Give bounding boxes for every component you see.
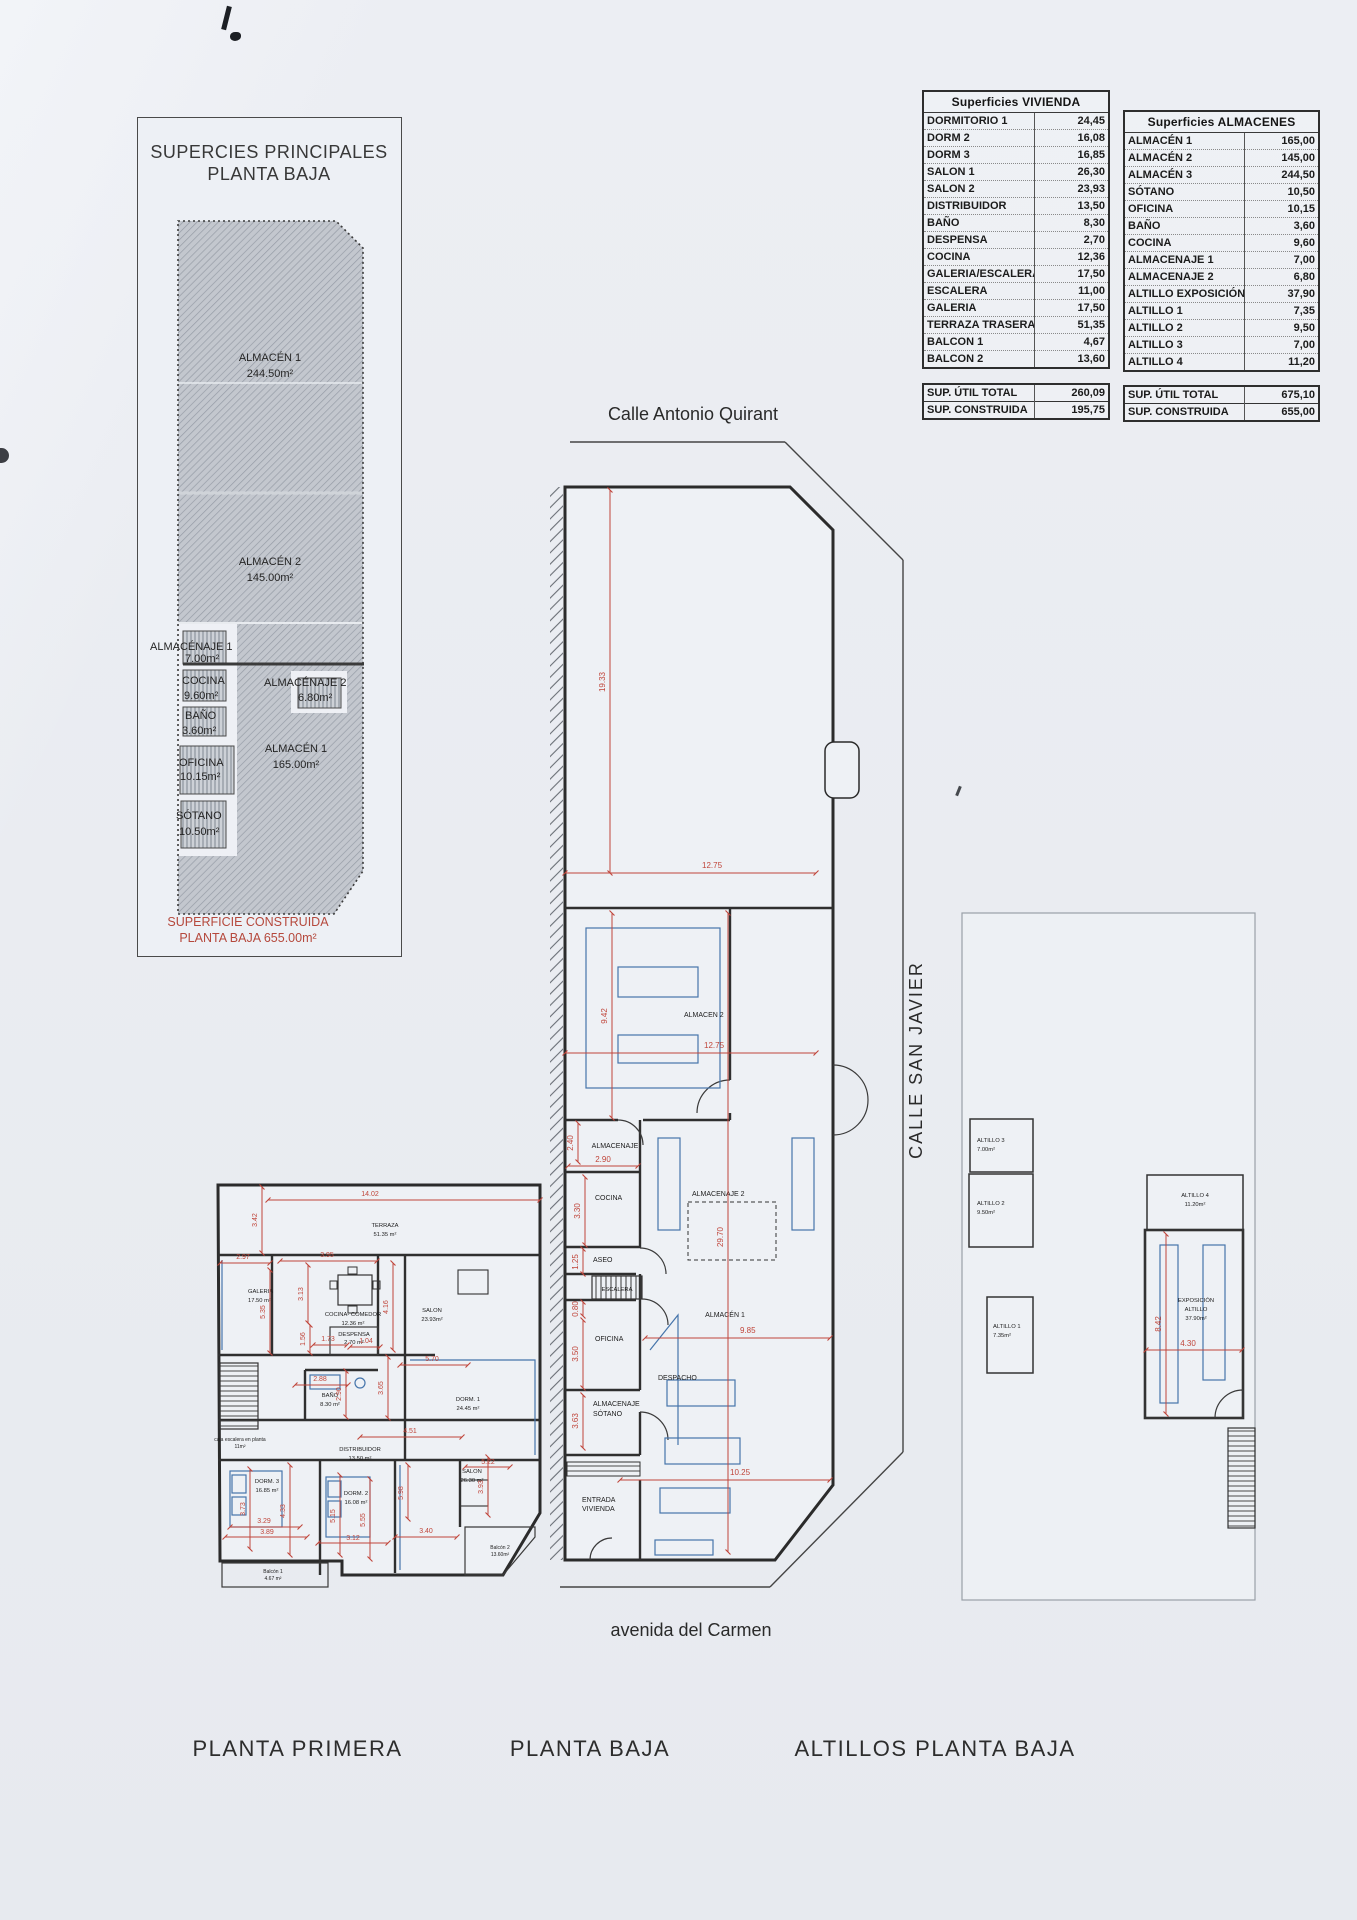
dimension-label: 3.65 — [378, 1381, 385, 1395]
table-row: DORMITORIO 124,45 — [923, 113, 1109, 130]
constructed-area-note-line1: SUPERFICIE CONSTRUIDA — [167, 915, 329, 929]
cell-value: 7,35 — [1244, 303, 1319, 320]
room-label: EXPOSICIÓN — [1178, 1297, 1214, 1304]
room-label: Balcón 1 — [263, 1569, 283, 1575]
room-label: COCINA- COMEDOR — [325, 1312, 381, 1318]
cell-label: COCINA — [1124, 235, 1244, 252]
dimension-label: 2.88 — [313, 1376, 327, 1383]
table-row: COCINA12,36 — [923, 249, 1109, 266]
street-label-north: Calle Antonio Quirant — [608, 404, 778, 424]
room-label: ALMACENAJE — [593, 1401, 640, 1408]
table-row: SALON 223,93 — [923, 181, 1109, 198]
room-area: 13.50 m² — [349, 1456, 372, 1462]
room-label: ALMACENAJE 2 — [692, 1191, 745, 1198]
room-area: 9.50m² — [977, 1210, 995, 1216]
dimension-label: 2.90 — [595, 1155, 611, 1164]
room-area: 145.00m² — [247, 572, 294, 584]
cell-value: 195,75 — [1034, 402, 1109, 420]
cell-label: SUP. CONSTRUIDA — [1124, 404, 1244, 422]
room-area: 9.60m² — [184, 690, 219, 702]
table-row: ALMACÉN 2145,00 — [1124, 150, 1319, 167]
room-label: ALTILLO 4 — [1181, 1193, 1209, 1199]
room-label: VIVIENDA — [582, 1506, 615, 1513]
stairs — [1228, 1428, 1255, 1528]
room-area: 4.67 m² — [265, 1576, 282, 1582]
table-row: DORM 316,85 — [923, 147, 1109, 164]
room-area: 11.20m² — [1185, 1202, 1206, 1208]
table-row: SUP. ÚTIL TOTAL675,10 — [1124, 386, 1319, 404]
cell-value: 9,50 — [1244, 320, 1319, 337]
room-label: DESPACHO — [658, 1375, 697, 1382]
table-title: Superficies ALMACENES — [1124, 111, 1319, 133]
room-area: 51.35 m² — [374, 1232, 397, 1238]
cell-value: 51,35 — [1034, 317, 1109, 334]
room-label: ALMACENAJE — [592, 1143, 639, 1150]
table-superficies-vivienda: Superficies VIVIENDA DORMITORIO 124,45DO… — [922, 90, 1110, 369]
scanned-plan-sheet: SUPERCIES PRINCIPALES PLANTA BAJA — [0, 0, 1357, 1920]
cell-label: ALTILLO 1 — [1124, 303, 1244, 320]
cell-label: ALTILLO 2 — [1124, 320, 1244, 337]
room-label: SALON — [462, 1469, 482, 1475]
room-area: 8.30 m² — [320, 1402, 340, 1408]
cell-value: 17,50 — [1034, 300, 1109, 317]
scan-artifact — [230, 32, 241, 41]
room-label: SÓTANO — [593, 1409, 623, 1418]
cell-value: 6,80 — [1244, 269, 1319, 286]
dimension-label: 9.42 — [600, 1008, 609, 1024]
cell-label: SÓTANO — [1124, 184, 1244, 201]
site-diagram-box: SUPERCIES PRINCIPALES PLANTA BAJA — [137, 117, 402, 957]
cell-value: 9,60 — [1244, 235, 1319, 252]
room-area: 37.90m² — [1185, 1316, 1206, 1322]
dimension-label: 5.15 — [330, 1509, 337, 1523]
room-label: ALMACEN 2 — [684, 1012, 724, 1019]
room-label: Balcón 2 — [490, 1545, 510, 1551]
room-label: GALERIA — [248, 1289, 273, 1295]
cell-label: ALMACÉN 3 — [1124, 167, 1244, 184]
cell-value: 165,00 — [1244, 133, 1319, 150]
room-label: DORM. 1 — [456, 1397, 480, 1403]
street-label-east: CALLE SAN JAVIER — [906, 961, 926, 1159]
table-row: DESPENSA2,70 — [923, 232, 1109, 249]
room-label: ALMACÉNAJE 2 — [264, 676, 347, 689]
room-area: 16.85 m² — [256, 1488, 279, 1494]
site-diagram: SUPERCIES PRINCIPALES PLANTA BAJA — [138, 118, 401, 956]
dimension-label: 1.04 — [359, 1338, 373, 1345]
dimension-label: 0.80 — [571, 1301, 580, 1317]
street-label-south: avenida del Carmen — [610, 1620, 771, 1640]
plan-title-planta-primera: PLANTA PRIMERA — [175, 1736, 420, 1762]
cell-value: 655,00 — [1244, 404, 1319, 422]
table-row: ESCALERA11,00 — [923, 283, 1109, 300]
room-label: SALON — [422, 1308, 442, 1314]
room-label: SÓTANO — [176, 809, 222, 822]
table-row: BALCON 14,67 — [923, 334, 1109, 351]
cell-value: 3,60 — [1244, 218, 1319, 235]
cell-label: SALON 2 — [923, 181, 1034, 198]
room-area: 165.00m² — [273, 759, 320, 771]
cell-label: ALMACÉN 1 — [1124, 133, 1244, 150]
room-label: DISTRIBUIDOR — [339, 1447, 381, 1453]
room-label: DORM. 3 — [255, 1479, 279, 1485]
room-area: 16.08 m² — [345, 1500, 368, 1506]
dimension-label: 2.90 — [336, 1387, 343, 1401]
room-label: ALTILLO 2 — [977, 1201, 1005, 1207]
cell-value: 145,00 — [1244, 150, 1319, 167]
dimension-label: 12.75 — [704, 1041, 725, 1050]
table-row: SUP. CONSTRUIDA655,00 — [1124, 404, 1319, 422]
cell-value: 4,67 — [1034, 334, 1109, 351]
cell-label: SUP. ÚTIL TOTAL — [1124, 386, 1244, 404]
room-label: ASEO — [593, 1257, 613, 1264]
dimension-label: 3.13 — [298, 1287, 305, 1301]
plan-title-altillos: ALTILLOS PLANTA BAJA — [785, 1736, 1085, 1762]
dimension-label: 1.73 — [321, 1336, 335, 1343]
site-title-line1: SUPERCIES PRINCIPALES — [150, 142, 387, 162]
table-row: ALTILLO 29,50 — [1124, 320, 1319, 337]
table-row: DISTRIBUIDOR13,50 — [923, 198, 1109, 215]
table-row: BAÑO3,60 — [1124, 218, 1319, 235]
table-row: BALCON 213,60 — [923, 351, 1109, 369]
room-area: 24.45 m² — [457, 1406, 480, 1412]
cell-value: 10,15 — [1244, 201, 1319, 218]
cell-value: 12,36 — [1034, 249, 1109, 266]
constructed-area-note-line2: PLANTA BAJA 655.00m² — [179, 931, 316, 945]
room-area: 6.80m² — [298, 692, 333, 704]
cell-value: 10,50 — [1244, 184, 1319, 201]
cell-value: 16,85 — [1034, 147, 1109, 164]
dimension-label: 4.16 — [383, 1300, 390, 1314]
dimension-label: 3.29 — [257, 1518, 271, 1525]
cell-value: 13,60 — [1034, 351, 1109, 369]
room-area: 7.35m² — [993, 1333, 1011, 1339]
cell-label: DESPENSA — [923, 232, 1034, 249]
dimension-label: 5.35 — [260, 1305, 267, 1319]
cell-label: DORMITORIO 1 — [923, 113, 1034, 130]
cell-value: 26,30 — [1034, 164, 1109, 181]
cell-label: BAÑO — [923, 215, 1034, 232]
dimension-label: 3.89 — [260, 1529, 274, 1536]
room-label: ALTILLO — [1185, 1307, 1208, 1313]
dimension-label: 3.63 — [571, 1413, 580, 1429]
room-area: 13.60m² — [491, 1552, 510, 1558]
room-area: 12.36 m² — [342, 1321, 365, 1327]
room-area: 23.93m² — [421, 1317, 442, 1323]
dimension-label: 4.33 — [280, 1504, 287, 1518]
room-label: COCINA — [595, 1195, 623, 1202]
dimension-label: 2.40 — [566, 1135, 575, 1151]
cell-label: BAÑO — [1124, 218, 1244, 235]
table-row: ALTILLO 411,20 — [1124, 354, 1319, 372]
dimension-label: 3.73 — [240, 1502, 247, 1516]
dimension-label: 3.95 — [320, 1252, 334, 1259]
room-label: COCINA — [182, 675, 225, 687]
dimension-label: 3.12 — [346, 1535, 360, 1542]
room-label: OFICINA — [179, 757, 224, 769]
dimension-label: 5.70 — [425, 1356, 439, 1363]
cell-label: GALERIA/ESCALERA — [923, 266, 1034, 283]
cell-value: 11,20 — [1244, 354, 1319, 372]
table-row: ALTILLO 37,00 — [1124, 337, 1319, 354]
walls — [550, 487, 868, 1560]
dimension-label: 3.42 — [252, 1213, 259, 1227]
cell-value: 8,30 — [1034, 215, 1109, 232]
table-row: ALMACENAJE 17,00 — [1124, 252, 1319, 269]
cell-label: ALMACENAJE 1 — [1124, 252, 1244, 269]
table-row: ALTILLO 17,35 — [1124, 303, 1319, 320]
dimension-label: 9.85 — [740, 1326, 756, 1335]
table-almacenes-totals: SUP. ÚTIL TOTAL675,10SUP. CONSTRUIDA655,… — [1123, 385, 1320, 422]
cell-value: 37,90 — [1244, 286, 1319, 303]
dimension-label: 5.22 — [481, 1459, 495, 1466]
cell-label: ALTILLO 4 — [1124, 354, 1244, 372]
dimension-label: 12.75 — [702, 861, 723, 870]
room-label: TERRAZA — [371, 1223, 398, 1229]
room-label: ALMACÉN 1 — [705, 1310, 745, 1319]
cell-label: SALON 1 — [923, 164, 1034, 181]
cell-value: 16,08 — [1034, 130, 1109, 147]
cell-label: ALMACENAJE 2 — [1124, 269, 1244, 286]
table-row: ALTILLO EXPOSICIÓN37,90 — [1124, 286, 1319, 303]
table-row: GALERIA/ESCALERA17,50 — [923, 266, 1109, 283]
site-title-line2: PLANTA BAJA — [207, 164, 330, 184]
room-area: 10.15m² — [180, 771, 221, 783]
table-row: TERRAZA TRASERA51,35 — [923, 317, 1109, 334]
room-label: ENTRADA — [582, 1497, 616, 1504]
dimension-label: 14.02 — [361, 1191, 379, 1198]
cell-value: 24,45 — [1034, 113, 1109, 130]
room-label: ALMACÉNAJE 1 — [150, 640, 233, 653]
room-label: ALMACÉN 1 — [265, 742, 327, 755]
plan-title-planta-baja: PLANTA BAJA — [485, 1736, 695, 1762]
table-title: Superficies VIVIENDA — [923, 91, 1109, 113]
table-row: SALON 126,30 — [923, 164, 1109, 181]
cell-label: ALTILLO 3 — [1124, 337, 1244, 354]
room-label: caja escalera en planta — [214, 1437, 266, 1443]
table-row: ALMACÉN 1165,00 — [1124, 133, 1319, 150]
cell-value: 11,00 — [1034, 283, 1109, 300]
room-label: ALMACÉN 2 — [239, 555, 301, 568]
dimension-label: 10.25 — [730, 1468, 751, 1477]
dimension-label: 19.33 — [598, 671, 607, 692]
cell-label: DISTRIBUIDOR — [923, 198, 1034, 215]
cell-label: BALCON 2 — [923, 351, 1034, 369]
dimension-label: 5.55 — [360, 1513, 367, 1527]
planta-primera-plan: TERRAZA 51.35 m² GALERIA 17.50 m² COCINA… — [210, 1175, 550, 1605]
dimension-label: 29.70 — [716, 1226, 725, 1247]
altillos-plan: ALTILLO 3 7.00m² ALTILLO 2 9.50m² ALTILL… — [950, 900, 1280, 1620]
cell-label: COCINA — [923, 249, 1034, 266]
cell-value: 7,00 — [1244, 337, 1319, 354]
dimension-label: 3.50 — [571, 1346, 580, 1362]
table-row: SÓTANO10,50 — [1124, 184, 1319, 201]
room-area: 7.00m² — [977, 1147, 995, 1153]
table-superficies-almacenes: Superficies ALMACENES ALMACÉN 1165,00ALM… — [1123, 110, 1320, 372]
cell-label: TERRAZA TRASERA — [923, 317, 1034, 334]
room-label: ALTILLO 3 — [977, 1138, 1005, 1144]
table-row: OFICINA10,15 — [1124, 201, 1319, 218]
room-area: 244.50m² — [247, 368, 294, 380]
dimension-label: 3.40 — [419, 1528, 433, 1535]
dimension-label: 5.98 — [398, 1486, 405, 1500]
cell-label: OFICINA — [1124, 201, 1244, 218]
room-label: ESCALERA — [602, 1287, 633, 1293]
cell-value: 675,10 — [1244, 386, 1319, 404]
scan-artifact — [221, 6, 232, 30]
dimension-label: 2.97 — [236, 1254, 250, 1261]
room-label: ALTILLO 1 — [993, 1324, 1021, 1330]
room-area: 3.60m² — [182, 725, 217, 737]
cell-value: 7,00 — [1244, 252, 1319, 269]
dimension-label: 1.25 — [571, 1254, 580, 1270]
cell-label: BALCON 1 — [923, 334, 1034, 351]
cell-label: DORM 3 — [923, 147, 1034, 164]
table-row: COCINA9,60 — [1124, 235, 1319, 252]
cell-label: ALTILLO EXPOSICIÓN — [1124, 286, 1244, 303]
scan-artifact — [0, 448, 9, 463]
room-area: 11m² — [234, 1444, 245, 1450]
cell-value: 260,09 — [1034, 384, 1109, 402]
dimension-label: 4.30 — [1180, 1339, 1196, 1348]
room-label: BAÑO — [185, 709, 217, 722]
dimension-label: 3.93 — [478, 1480, 485, 1494]
table-row: GALERIA17,50 — [923, 300, 1109, 317]
cell-label: DORM 2 — [923, 130, 1034, 147]
room-label: DORM. 2 — [344, 1491, 368, 1497]
room-label: ALMACÉN 1 — [239, 351, 301, 364]
dimension-label: 3.30 — [573, 1203, 582, 1219]
table-row: BAÑO8,30 — [923, 215, 1109, 232]
dimension-label: 8.42 — [1154, 1316, 1163, 1332]
dimension-label: 4.51 — [403, 1428, 417, 1435]
cell-label: GALERIA — [923, 300, 1034, 317]
cell-value: 17,50 — [1034, 266, 1109, 283]
cell-label: ALMACÉN 2 — [1124, 150, 1244, 167]
table-row: DORM 216,08 — [923, 130, 1109, 147]
cell-label: ESCALERA — [923, 283, 1034, 300]
table-row: ALMACENAJE 26,80 — [1124, 269, 1319, 286]
cell-value: 2,70 — [1034, 232, 1109, 249]
dimension-label: 1.56 — [300, 1332, 307, 1346]
cell-value: 13,50 — [1034, 198, 1109, 215]
room-area: 7.00m² — [185, 653, 220, 665]
room-area: 10.50m² — [179, 826, 220, 838]
table-row: ALMACÉN 3244,50 — [1124, 167, 1319, 184]
cell-value: 244,50 — [1244, 167, 1319, 184]
room-area: 17.50 m² — [248, 1298, 271, 1304]
cell-value: 23,93 — [1034, 181, 1109, 198]
room-label: OFICINA — [595, 1336, 624, 1343]
